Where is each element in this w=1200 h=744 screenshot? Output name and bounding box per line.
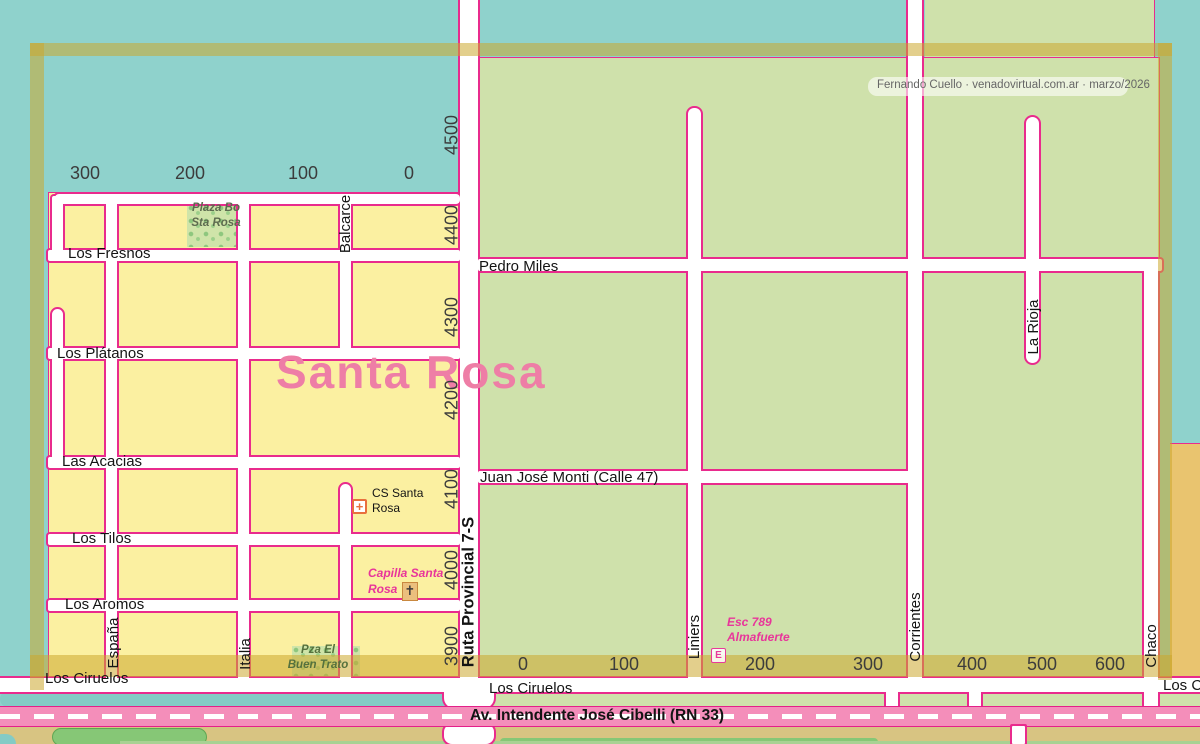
grid-top-100: 100 (288, 164, 318, 183)
school-icon: E (711, 648, 726, 663)
street-label-la-rioja: La Rioja (1026, 299, 1042, 354)
street-label-las-acacias: Las Acacias (62, 454, 142, 470)
street-los-ciruelos (0, 678, 1200, 692)
attribution-text: Fernando Cuello · venadovirtual.com.ar ·… (877, 80, 1150, 92)
grid-top-200: 200 (175, 164, 205, 183)
frame-right (1158, 43, 1172, 680)
grid-west-4400: 4400 (443, 205, 462, 245)
map-title: Santa Rosa (276, 349, 547, 397)
street-label-chaco: Chaco (1144, 624, 1160, 667)
street-pedro-miles (478, 259, 1162, 271)
street-label-ruta: Ruta Provincial 7-S (460, 517, 477, 667)
street-west-edge-south (52, 309, 63, 465)
poi-label-pza-buen-trato-1: Pza El (301, 645, 335, 657)
street-label-los-aromos: Los Aromos (65, 597, 144, 613)
street-corrientes (908, 0, 922, 690)
grid-west-3900: 3900 (443, 626, 462, 666)
chapel-icon: ✝ (402, 582, 418, 601)
poi-label-esc-1: Esc 789 (727, 616, 772, 628)
street-stub-3 (1012, 726, 1025, 744)
frame-bottom (30, 655, 1172, 677)
street-italia (238, 196, 249, 684)
poi-label-cs-santa-rosa-1: CS Santa (372, 487, 423, 499)
street-label-balcarce: Balcarce (338, 195, 354, 253)
ramp-north (444, 682, 494, 708)
poi-label-plaza-sta-rosa-1: Plaza Bo (192, 203, 240, 215)
grid-west-4500: 4500 (443, 115, 462, 155)
grid-west-4100: 4100 (443, 469, 462, 509)
ramp-south (444, 724, 494, 744)
grid-bottom-0: 0 (518, 655, 528, 674)
street-label-liniers: Liniers (687, 615, 703, 659)
street-label-pedro-miles: Pedro Miles (479, 259, 558, 275)
poi-label-esc-2: Almafuerte (727, 631, 790, 643)
grid-top-300: 300 (70, 164, 100, 183)
street-label-italia: Italia (238, 638, 254, 670)
grid-west-4200: 4200 (443, 380, 462, 420)
street-label-juan-jose-monti: Juan José Monti (Calle 47) (480, 470, 658, 486)
grid-top-0: 0 (404, 164, 414, 183)
grid-bottom-400: 400 (957, 655, 987, 674)
poi-label-capilla-1: Capilla Santa (368, 567, 443, 579)
grid-bottom-500: 500 (1027, 655, 1057, 674)
poi-label-plaza-sta-rosa-2: Sta Rosa (191, 218, 240, 230)
map-canvas[interactable]: Los FresnosPedro MilesLos PlátanosLas Ac… (0, 0, 1200, 744)
grid-bottom-100: 100 (609, 655, 639, 674)
grid-bottom-300: 300 (853, 655, 883, 674)
frame-top (30, 43, 1172, 56)
avenue-label: Av. Intendente José Cibelli (RN 33) (470, 708, 724, 724)
grid-west-4000: 4000 (443, 550, 462, 590)
health-center-icon: + (352, 499, 367, 514)
street-west-edge-north (52, 196, 63, 256)
street-label-los-tilos: Los Tilos (72, 531, 131, 547)
grid-bottom-200: 200 (745, 655, 775, 674)
street-label-los-ciruelos-center: Los Ciruelos (489, 681, 572, 697)
zone-gold-southeast (1170, 443, 1200, 693)
poi-label-cs-santa-rosa-2: Rosa (372, 502, 400, 514)
street-label-corrientes: Corrientes (908, 592, 924, 661)
street-balcarce-south (340, 484, 351, 684)
street-label-los-ciruelos-east: Los Ciruelos (1163, 678, 1200, 694)
street-label-los-platanos: Los Plátanos (57, 346, 144, 362)
frame-left (30, 43, 44, 690)
street-label-los-ciruelos-west: Los Ciruelos (45, 671, 128, 687)
street-label-los-fresnos: Los Fresnos (68, 246, 151, 262)
grid-west-4300: 4300 (443, 297, 462, 337)
grid-bottom-600: 600 (1095, 655, 1125, 674)
poi-label-pza-buen-trato-2: Buen Trato (288, 660, 349, 672)
street-liniers (688, 108, 701, 686)
zone-rural-green (478, 57, 1160, 712)
street-label-espana: España (106, 618, 122, 669)
poi-label-capilla-2: Rosa (368, 583, 397, 595)
